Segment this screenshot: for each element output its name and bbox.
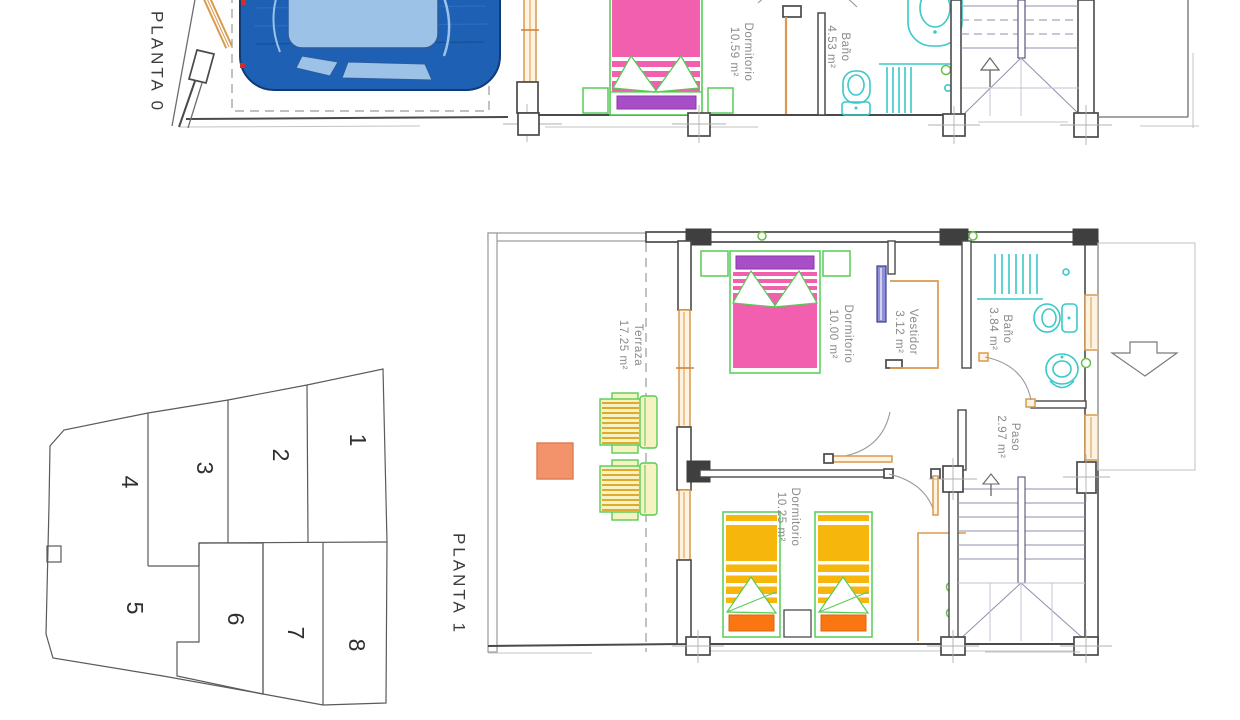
sun-lounger	[600, 460, 657, 520]
parcel-map: 1 2 3 4 5 6 7 8	[46, 369, 387, 705]
bed-pillow	[617, 96, 696, 109]
room-label-name: Paso	[1009, 423, 1021, 452]
paso: Paso 2.97 m²	[958, 353, 1086, 470]
room-label-name: Terraza	[632, 324, 644, 367]
room-label-area: 10.25 m²	[775, 492, 787, 542]
room-label-name: Vestidor	[907, 309, 919, 355]
nightstand	[784, 610, 811, 637]
floor0-title: PLANTA 0	[148, 11, 167, 113]
terraza: Terraza 17.25 m²	[537, 243, 657, 652]
column	[503, 82, 562, 142]
sink	[1046, 354, 1078, 388]
room-east0	[1098, 0, 1199, 128]
garage-gate-beam	[204, 0, 229, 47]
sun-lounger	[600, 393, 657, 453]
room-label-area: 3.12 m²	[893, 310, 905, 353]
bed-pillow	[821, 615, 866, 631]
bathroom0: Baño 4.53 m²	[825, 0, 962, 116]
lot-number: 3	[192, 462, 218, 475]
lot-number: 5	[122, 602, 148, 615]
west-facade-wall	[672, 241, 724, 663]
room-label-name: Baño	[839, 32, 851, 61]
single-bed-orange	[815, 512, 872, 637]
parcel-boundary	[46, 369, 387, 705]
room-label-area: 10.00 m²	[827, 309, 839, 359]
lot-number: 2	[268, 449, 294, 462]
car-top-view	[240, 0, 500, 90]
nightstand	[823, 251, 850, 276]
room-label-name: Dormitorio	[789, 487, 801, 546]
floor1-title: PLANTA 1	[450, 533, 469, 635]
planta0-plan: PLANTA 0	[148, 0, 1200, 145]
bathroom1: Baño 3.84 m²	[977, 254, 1078, 388]
architectural-drawing: PLANTA 0	[0, 0, 1240, 720]
bed-pillow	[736, 256, 814, 269]
interior-wall	[700, 412, 940, 515]
nightstand	[701, 251, 728, 276]
vestidor: Vestidor 3.12 m²	[886, 241, 971, 368]
room-label-area: 2.97 m²	[995, 415, 1007, 458]
toilet	[1034, 304, 1077, 332]
double-bed-pink	[610, 0, 702, 115]
entrance-arrow-icon	[1112, 342, 1177, 376]
stairs-up-arrow	[983, 474, 999, 496]
lot-number: 4	[117, 476, 143, 489]
lot-number: 1	[345, 434, 371, 447]
dormitorio1: Dormitorio 10.00 m²	[701, 251, 886, 373]
survey-marker	[240, 63, 245, 68]
terrace-table	[537, 443, 573, 479]
room-label-name: Dormitorio	[742, 22, 754, 81]
shower	[879, 64, 952, 113]
lot-number: 8	[344, 639, 370, 652]
door-leaf	[933, 476, 938, 515]
toilet	[842, 71, 870, 115]
garage	[172, 0, 508, 128]
room-label-name: Baño	[1001, 314, 1013, 343]
room-label-area: 4.53 m²	[825, 25, 837, 68]
room-label-area: 17.25 m²	[617, 320, 629, 370]
bedroom0: Dormitorio 10.59 m²	[538, 0, 952, 143]
lot-number: 7	[283, 627, 309, 640]
nightstand	[583, 88, 608, 113]
closet	[918, 533, 966, 641]
room-label-name: Dormitorio	[842, 304, 854, 363]
single-bed-orange	[723, 512, 780, 637]
room-label-area: 3.84 m²	[987, 307, 999, 350]
door-leaf	[833, 456, 892, 462]
double-bed-pink	[730, 251, 820, 373]
nightstand	[708, 88, 733, 113]
survey-marker	[241, 0, 246, 5]
window-frame-west	[521, 0, 539, 82]
shower	[977, 254, 1069, 299]
room-label-area: 10.59 m²	[728, 27, 740, 77]
planta1-plan: PLANTA 1	[450, 229, 1196, 663]
bed-pillow	[729, 615, 774, 631]
floor-plan-drawing: PLANTA 0	[0, 0, 1240, 720]
lot-number: 6	[223, 613, 249, 626]
